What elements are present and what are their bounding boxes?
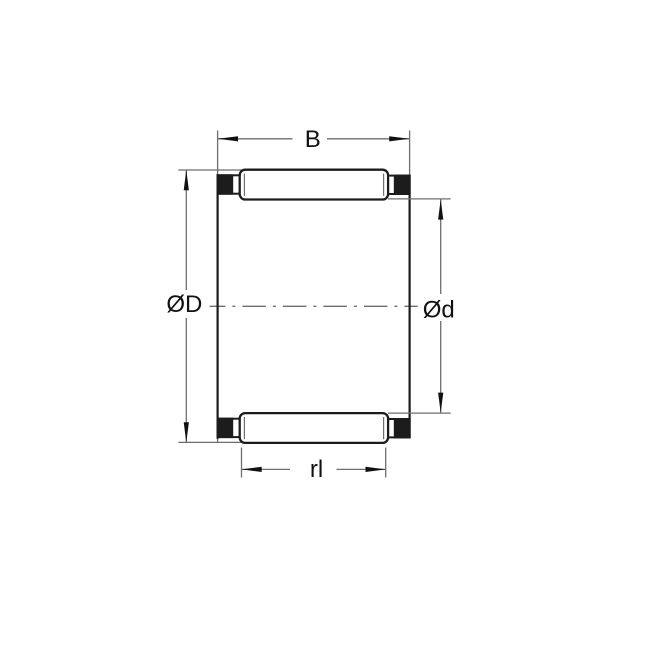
svg-text:rl: rl — [310, 456, 323, 483]
svg-text:ØD: ØD — [166, 291, 202, 318]
svg-text:Ød: Ød — [423, 297, 455, 324]
svg-text:B: B — [305, 126, 321, 153]
